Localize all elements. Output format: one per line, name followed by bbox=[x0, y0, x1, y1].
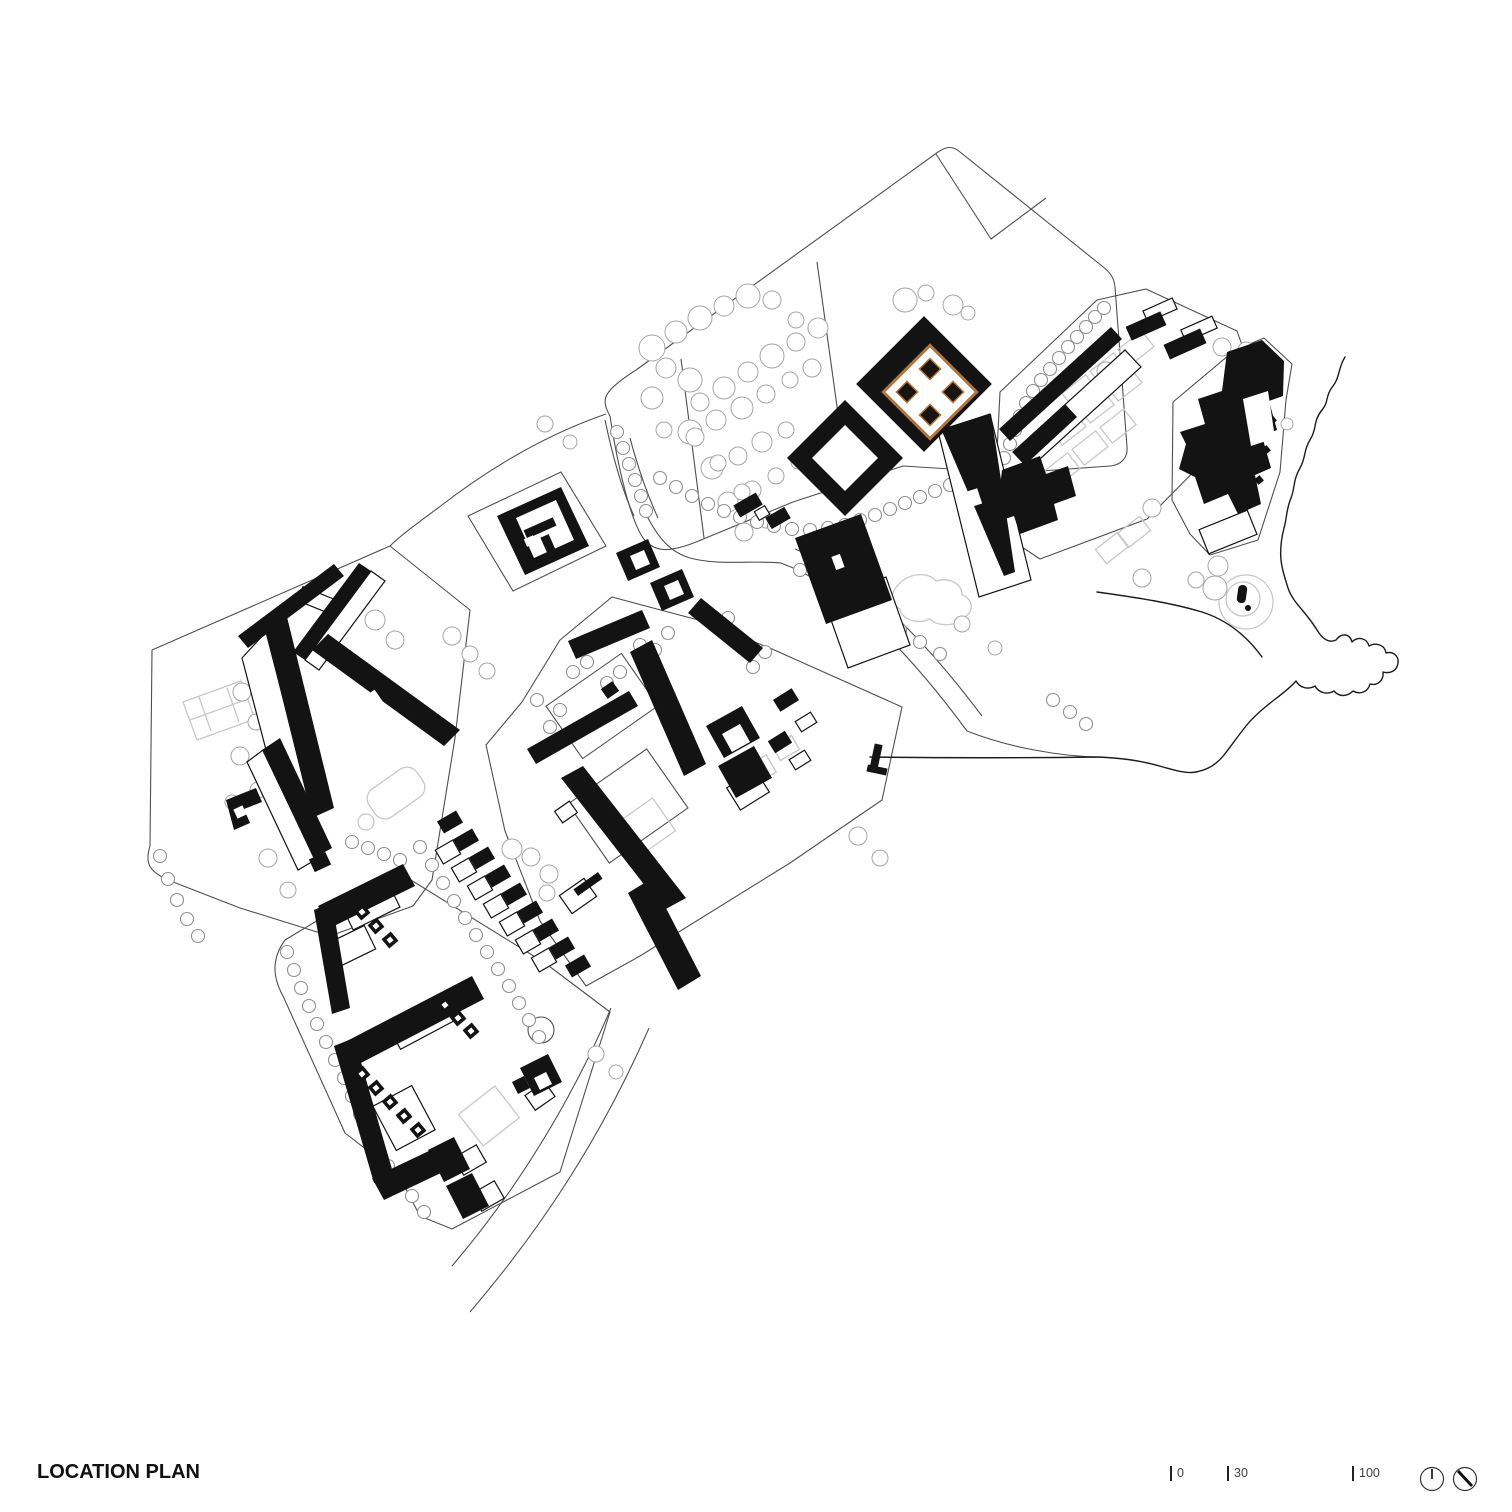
tree-canopy bbox=[656, 358, 676, 378]
tree-canopy bbox=[713, 377, 735, 399]
street-tree bbox=[567, 666, 580, 679]
street-tree bbox=[162, 873, 175, 886]
tree-canopy bbox=[729, 447, 747, 465]
scale-tick: 30 bbox=[1227, 1466, 1248, 1481]
tree-canopy bbox=[686, 428, 704, 446]
tree-canopy bbox=[710, 455, 726, 471]
street-tree bbox=[718, 505, 731, 518]
building-roof bbox=[795, 712, 817, 732]
street-tree bbox=[1064, 706, 1077, 719]
street-tree bbox=[544, 721, 557, 734]
tree-canopy bbox=[988, 641, 1002, 655]
tree-canopy bbox=[1208, 556, 1228, 576]
tree-canopy bbox=[1203, 576, 1227, 600]
tree-canopy bbox=[768, 468, 784, 484]
tree-canopy bbox=[954, 616, 970, 632]
street-tree bbox=[794, 564, 807, 577]
street-tree bbox=[662, 627, 675, 640]
street-tree bbox=[171, 894, 184, 907]
street-tree bbox=[346, 836, 359, 849]
building-mass bbox=[1236, 584, 1247, 603]
tree-canopy bbox=[778, 422, 794, 438]
street-tree bbox=[654, 472, 667, 485]
light-details bbox=[459, 1086, 520, 1146]
tree-canopy bbox=[386, 631, 404, 649]
drawing-title: LOCATION PLAN bbox=[37, 1461, 200, 1484]
tree-canopy bbox=[803, 359, 821, 377]
tree-canopy bbox=[760, 344, 784, 368]
tree-canopy bbox=[233, 683, 251, 701]
parcel-lines bbox=[936, 154, 1046, 239]
tree-canopy bbox=[714, 296, 734, 316]
building-roof bbox=[555, 801, 578, 823]
building-mass bbox=[1245, 605, 1251, 611]
tree-canopy bbox=[462, 646, 478, 662]
tree-canopy bbox=[609, 1065, 623, 1079]
street-tree bbox=[311, 1018, 324, 1031]
tree-canopy bbox=[872, 850, 888, 866]
building-mass bbox=[688, 598, 763, 663]
north-indicator-icon bbox=[1419, 1466, 1445, 1492]
street-tree bbox=[554, 704, 567, 717]
scale-tick: 100 bbox=[1352, 1466, 1380, 1481]
street-tree bbox=[1047, 694, 1060, 707]
street-tree bbox=[414, 841, 427, 854]
street-tree bbox=[513, 997, 526, 1010]
shoreline bbox=[1097, 592, 1262, 657]
street-tree bbox=[614, 666, 627, 679]
street-tree bbox=[426, 859, 439, 872]
tree-canopy bbox=[539, 885, 555, 901]
tree-canopy bbox=[736, 284, 760, 308]
street-tree bbox=[670, 481, 683, 494]
tree-canopy bbox=[588, 1046, 604, 1062]
street-tree bbox=[1098, 302, 1111, 315]
tree-canopy bbox=[563, 435, 577, 449]
scale-tick-label: 0 bbox=[1177, 1466, 1184, 1481]
tree-canopy bbox=[782, 372, 798, 388]
scale-tick-mark bbox=[1227, 1466, 1229, 1481]
street-tree bbox=[934, 648, 947, 661]
street-tree bbox=[581, 656, 594, 669]
tree-canopy bbox=[678, 368, 702, 392]
street-tree bbox=[686, 490, 699, 503]
tree-canopy bbox=[788, 312, 804, 328]
tree-canopy bbox=[738, 362, 758, 382]
tree-canopy bbox=[763, 291, 781, 309]
tree-canopy bbox=[943, 295, 963, 315]
street-tree bbox=[492, 963, 505, 976]
street-tree bbox=[899, 497, 912, 510]
tree-canopy bbox=[787, 333, 805, 351]
street-tree bbox=[531, 694, 544, 707]
street-tree bbox=[629, 474, 642, 487]
tree-canopy bbox=[849, 827, 867, 845]
building-mass bbox=[630, 640, 706, 776]
street-tree bbox=[320, 1036, 333, 1049]
building-mass bbox=[768, 731, 792, 753]
street-tree bbox=[459, 912, 472, 925]
tree-canopy bbox=[808, 318, 828, 338]
tree-canopy bbox=[537, 416, 553, 432]
street-tree bbox=[181, 913, 194, 926]
street-tree bbox=[884, 503, 897, 516]
street-tree bbox=[154, 850, 167, 863]
tree-canopy bbox=[706, 410, 726, 430]
scale-tick-label: 100 bbox=[1359, 1466, 1380, 1481]
tree-canopy bbox=[731, 397, 753, 419]
street-tree bbox=[1035, 374, 1048, 387]
street-tree bbox=[914, 636, 927, 649]
tree-canopy bbox=[691, 393, 709, 411]
site-plan-canvas bbox=[0, 0, 1512, 1512]
scale-tick-mark bbox=[1352, 1466, 1354, 1481]
tree-canopy bbox=[259, 849, 277, 867]
street-tree bbox=[481, 946, 494, 959]
street-tree bbox=[747, 661, 760, 674]
street-tree bbox=[448, 895, 461, 908]
light-details bbox=[1219, 575, 1273, 629]
tree-canopy bbox=[752, 432, 772, 452]
location-plan-sheet: LOCATION PLAN 030100 bbox=[0, 0, 1512, 1512]
street-tree bbox=[914, 491, 927, 504]
light-details bbox=[362, 762, 429, 823]
tree-canopy bbox=[688, 306, 712, 330]
tree-canopy bbox=[1188, 572, 1204, 588]
tree-canopy bbox=[961, 306, 975, 320]
light-details bbox=[1100, 409, 1136, 443]
street-tree bbox=[523, 1014, 536, 1027]
building-mass bbox=[773, 688, 799, 712]
street-tree bbox=[617, 442, 630, 455]
tree-canopy bbox=[522, 848, 540, 866]
street-tree bbox=[786, 523, 799, 536]
street-tree bbox=[418, 1206, 431, 1219]
tree-canopy bbox=[918, 285, 934, 301]
tree-canopy bbox=[280, 882, 296, 898]
scale-tick: 0 bbox=[1170, 1466, 1184, 1481]
tree-canopy bbox=[1143, 499, 1161, 517]
street-tree bbox=[470, 929, 483, 942]
building-mass bbox=[437, 810, 463, 833]
tree-canopy bbox=[479, 663, 495, 679]
street-tree bbox=[929, 485, 942, 498]
street-tree bbox=[611, 426, 624, 439]
tree-canopy bbox=[1133, 569, 1151, 587]
street-tree bbox=[1044, 363, 1057, 376]
building-mass bbox=[446, 1173, 489, 1219]
building-mass bbox=[312, 634, 460, 746]
street-tree bbox=[288, 964, 301, 977]
tree-canopy bbox=[735, 523, 753, 541]
tree-canopy bbox=[757, 385, 775, 403]
tree-canopy bbox=[893, 288, 917, 312]
street-tree bbox=[192, 930, 205, 943]
street-tree bbox=[378, 848, 391, 861]
tree-canopy bbox=[231, 747, 249, 765]
street-tree bbox=[869, 509, 882, 522]
street-tree bbox=[533, 1031, 546, 1044]
scale-tick-mark bbox=[1170, 1466, 1172, 1481]
tree-canopy bbox=[443, 627, 461, 645]
street-tree bbox=[635, 490, 648, 503]
tree-canopy bbox=[540, 865, 558, 883]
light-details bbox=[1072, 431, 1108, 465]
light-details bbox=[358, 814, 374, 830]
street-tree bbox=[406, 1190, 419, 1203]
street-tree bbox=[623, 458, 636, 471]
tree-canopy bbox=[639, 335, 665, 361]
scale-tick-label: 30 bbox=[1234, 1466, 1248, 1481]
tree-canopy bbox=[365, 610, 385, 630]
light-details bbox=[1117, 516, 1150, 547]
street-tree bbox=[295, 982, 308, 995]
street-tree bbox=[394, 854, 407, 867]
tree-canopy bbox=[665, 321, 687, 343]
tree-canopy bbox=[656, 422, 672, 438]
street-tree bbox=[362, 842, 375, 855]
street-tree bbox=[437, 877, 450, 890]
slash-orientation-icon bbox=[1452, 1466, 1478, 1492]
tree-canopy bbox=[502, 839, 522, 859]
street-tree bbox=[503, 980, 516, 993]
tree-canopy bbox=[1281, 418, 1293, 430]
street-tree bbox=[281, 946, 294, 959]
tree-canopy bbox=[641, 387, 663, 409]
street-tree bbox=[1053, 352, 1066, 365]
street-tree bbox=[303, 1000, 316, 1013]
street-tree bbox=[702, 498, 715, 511]
street-tree bbox=[640, 505, 653, 518]
street-tree bbox=[1080, 718, 1093, 731]
building-roof bbox=[1199, 510, 1257, 554]
